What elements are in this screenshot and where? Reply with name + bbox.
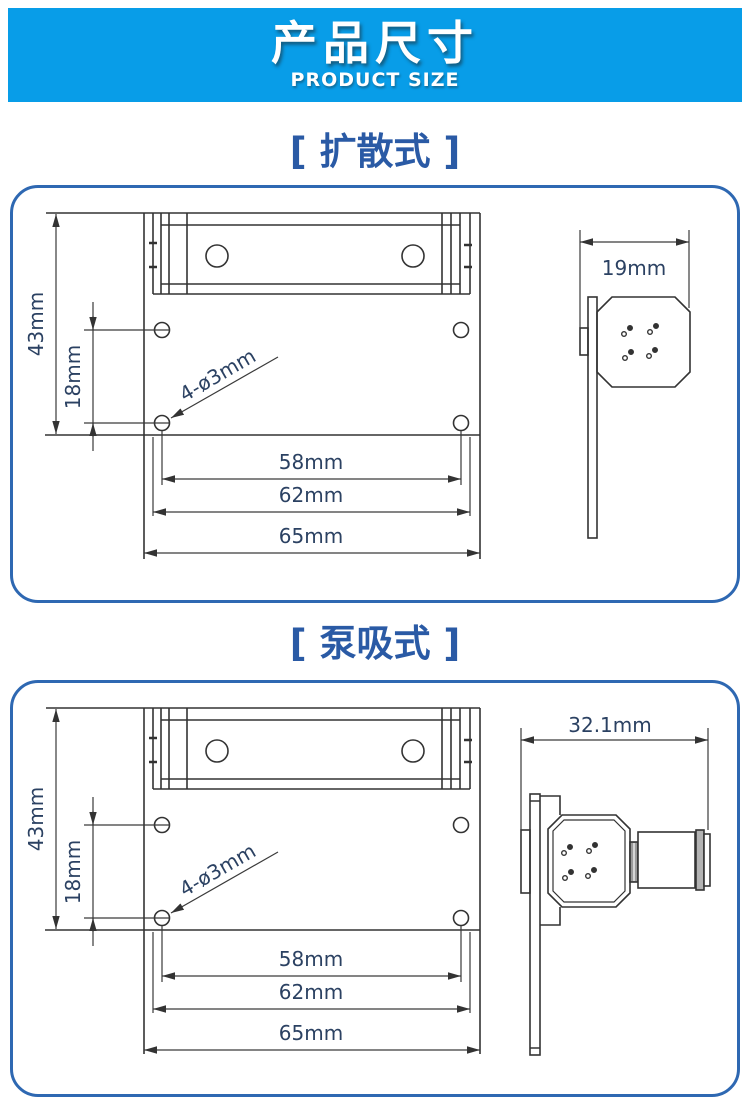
panel-diffusion: 43mm 18mm 4-ø3mm 58mm 62mm 65mm [10, 185, 740, 603]
bracket-top [540, 796, 560, 815]
front-dimensions [56, 214, 480, 553]
dim-width-mid-label: 62mm [279, 980, 343, 1004]
mounting-plate [530, 794, 540, 1055]
bracket-bottom [540, 907, 560, 925]
dim-width-inner-label: 58mm [279, 947, 343, 971]
dim-width-outer-label: 65mm [279, 524, 343, 548]
solenoid-body-outer [548, 815, 630, 907]
dim-height-label: 43mm [24, 292, 48, 356]
device-outline [45, 708, 480, 1054]
plate-caps [530, 801, 540, 1048]
page: 产品尺寸 PRODUCT SIZE [ 扩散式 ] [0, 0, 750, 1113]
contact-screws [562, 843, 598, 881]
diffusion-drawing: 43mm 18mm 4-ø3mm 58mm 62mm 65mm [10, 185, 740, 603]
fitting-ring [696, 830, 704, 890]
dim-depth-label: 19mm [602, 256, 666, 280]
fitting-body [638, 832, 695, 888]
header-banner: 产品尺寸 PRODUCT SIZE [8, 8, 742, 102]
front-view [45, 213, 480, 559]
dim-height-label: 43mm [24, 787, 48, 851]
solenoid-body-inner [553, 820, 625, 902]
mounting-rail [149, 708, 472, 789]
fitting-cap [704, 834, 710, 886]
contact-screws [622, 324, 659, 361]
plate-notch [521, 830, 530, 893]
pump-drawing: 43mm 18mm 4-ø3mm 58mm 62mm 65mm [10, 680, 740, 1097]
page-title: 产品尺寸 [271, 20, 479, 66]
side-view-pump [521, 794, 710, 1055]
pneumatic-fitting [630, 830, 710, 890]
dim-depth-label: 32.1mm [568, 713, 652, 737]
solenoid-body [597, 297, 690, 387]
dim-hole-spacing-label: 18mm [61, 840, 85, 904]
dim-width-outer-label: 65mm [279, 1021, 343, 1045]
front-view [45, 708, 480, 1054]
mounting-rail [149, 213, 472, 294]
mounting-plate [588, 297, 597, 538]
plate-notch [580, 328, 588, 355]
device-outline [45, 213, 480, 559]
dim-hole-spacing-label: 18mm [61, 345, 85, 409]
panel-pump: 43mm 18mm 4-ø3mm 58mm 62mm 65mm [10, 680, 740, 1097]
dim-width-inner-label: 58mm [279, 450, 343, 474]
section-title-diffusion: [ 扩散式 ] [0, 130, 750, 174]
page-subtitle: PRODUCT SIZE [291, 69, 460, 91]
section-title-pump: [ 泵吸式 ] [0, 622, 750, 666]
dim-width-mid-label: 62mm [279, 483, 343, 507]
side-view-diffusion [580, 297, 690, 538]
front-dimensions [56, 709, 480, 1050]
